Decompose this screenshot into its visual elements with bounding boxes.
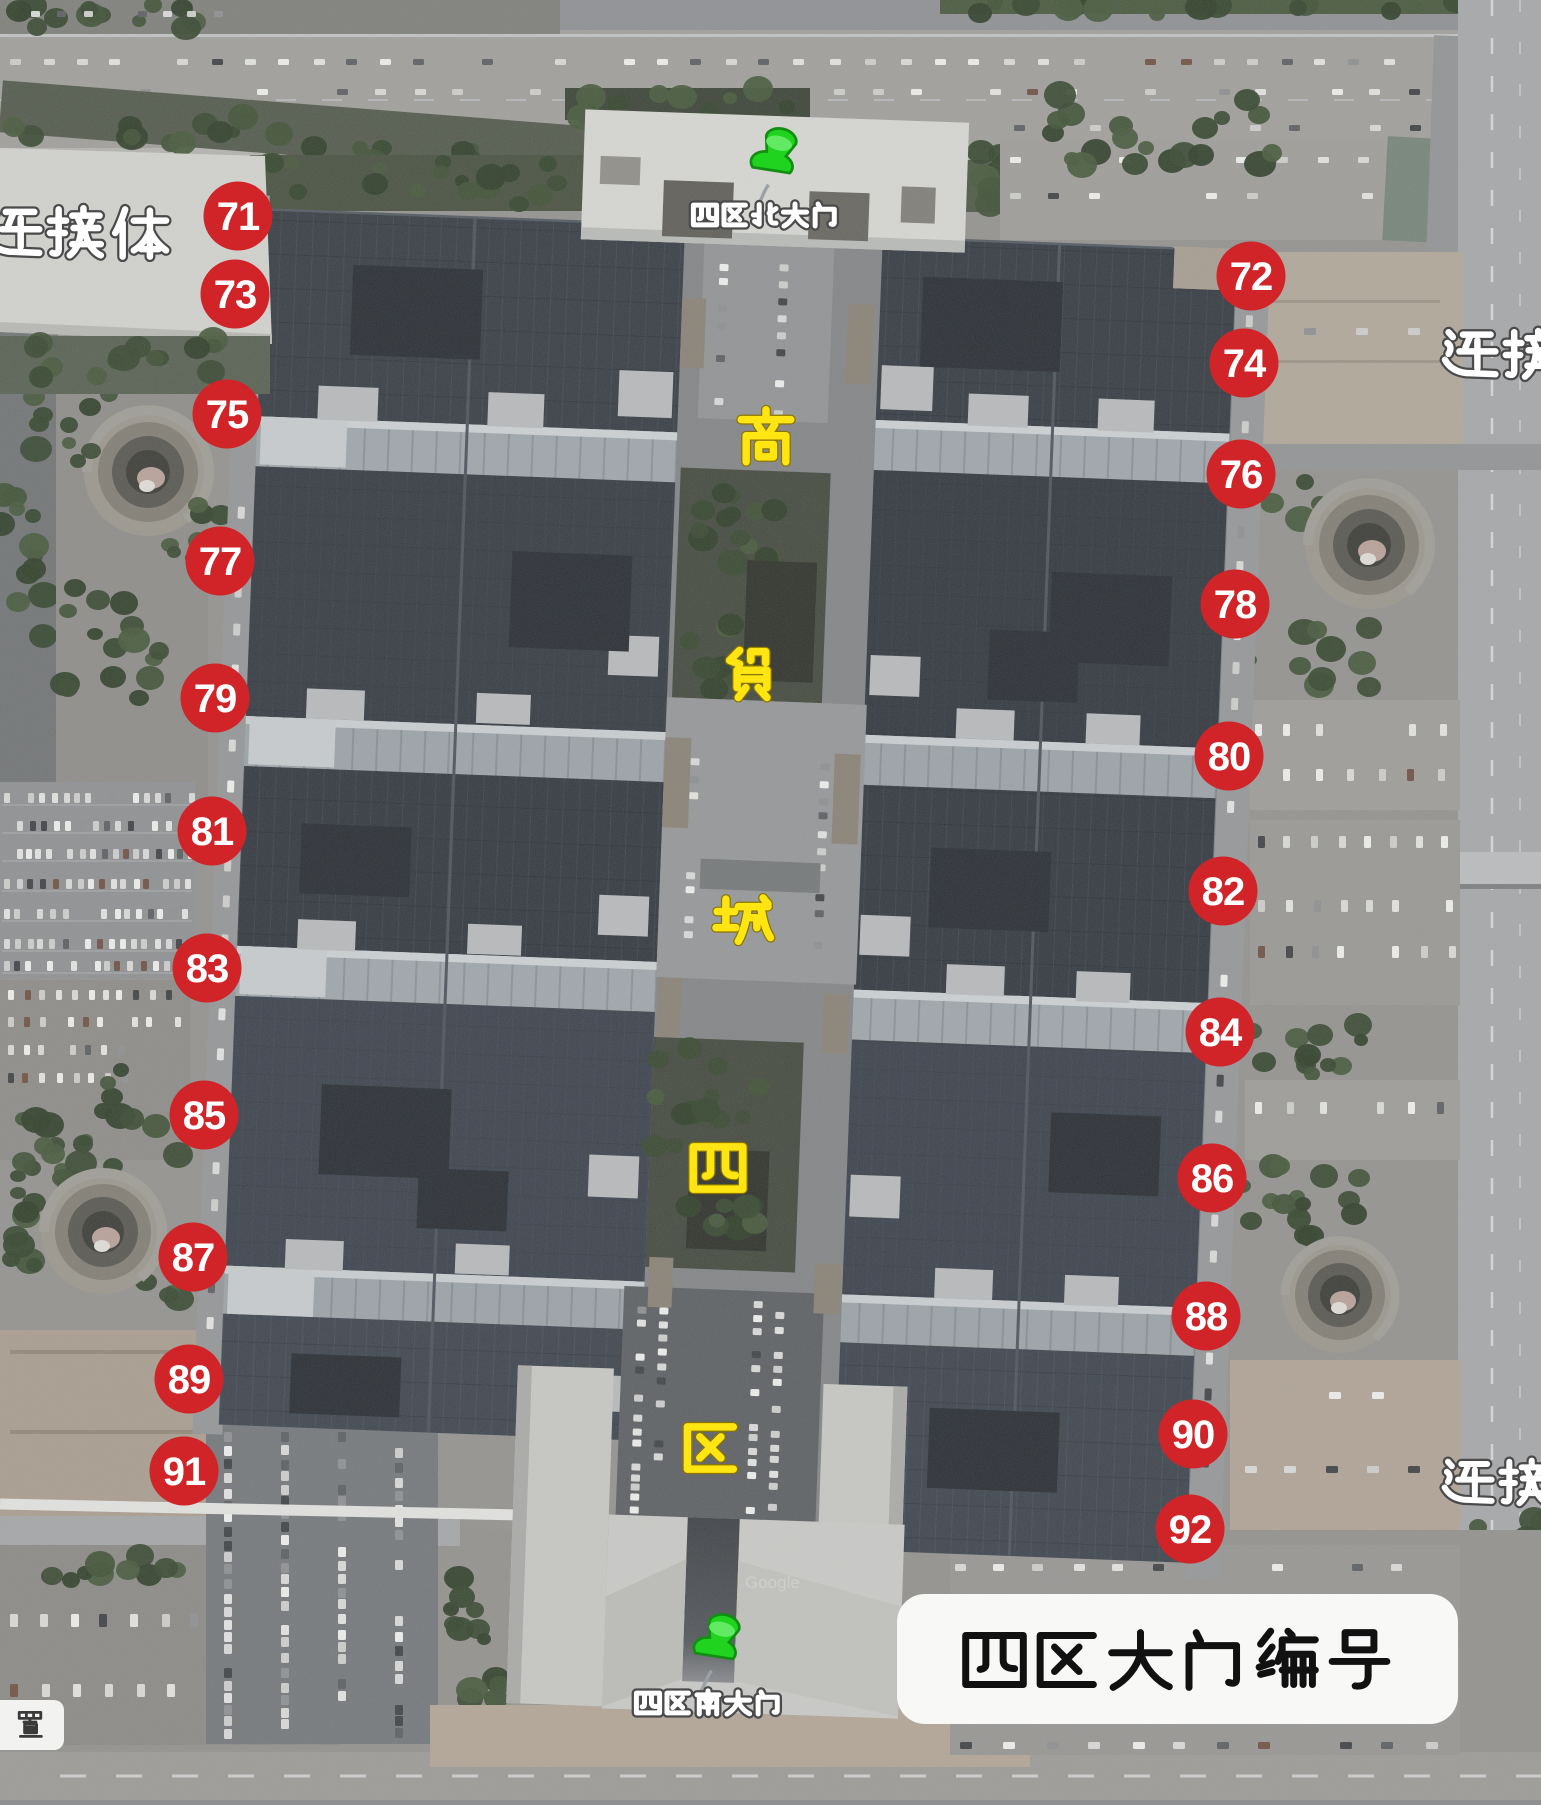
svg-text:90: 90	[1172, 1413, 1215, 1457]
svg-text:76: 76	[1220, 453, 1263, 497]
svg-text:75: 75	[206, 393, 249, 437]
svg-text:72: 72	[1230, 255, 1273, 299]
svg-text:89: 89	[168, 1358, 211, 1402]
svg-text:77: 77	[199, 540, 242, 584]
svg-text:80: 80	[1208, 735, 1251, 779]
svg-text:88: 88	[1185, 1295, 1228, 1339]
svg-text:Google: Google	[745, 1573, 800, 1592]
svg-text:78: 78	[1214, 583, 1257, 627]
svg-text:82: 82	[1202, 870, 1245, 914]
svg-text:86: 86	[1191, 1157, 1234, 1201]
svg-text:73: 73	[214, 273, 257, 317]
svg-text:83: 83	[186, 947, 229, 991]
svg-text:85: 85	[183, 1094, 226, 1138]
svg-text:81: 81	[191, 810, 234, 854]
svg-text:91: 91	[163, 1450, 206, 1494]
svg-text:87: 87	[172, 1236, 215, 1280]
svg-text:74: 74	[1223, 342, 1267, 386]
svg-text:79: 79	[194, 677, 237, 721]
svg-text:84: 84	[1199, 1011, 1243, 1055]
svg-text:71: 71	[217, 195, 260, 239]
svg-text:92: 92	[1169, 1508, 1212, 1552]
